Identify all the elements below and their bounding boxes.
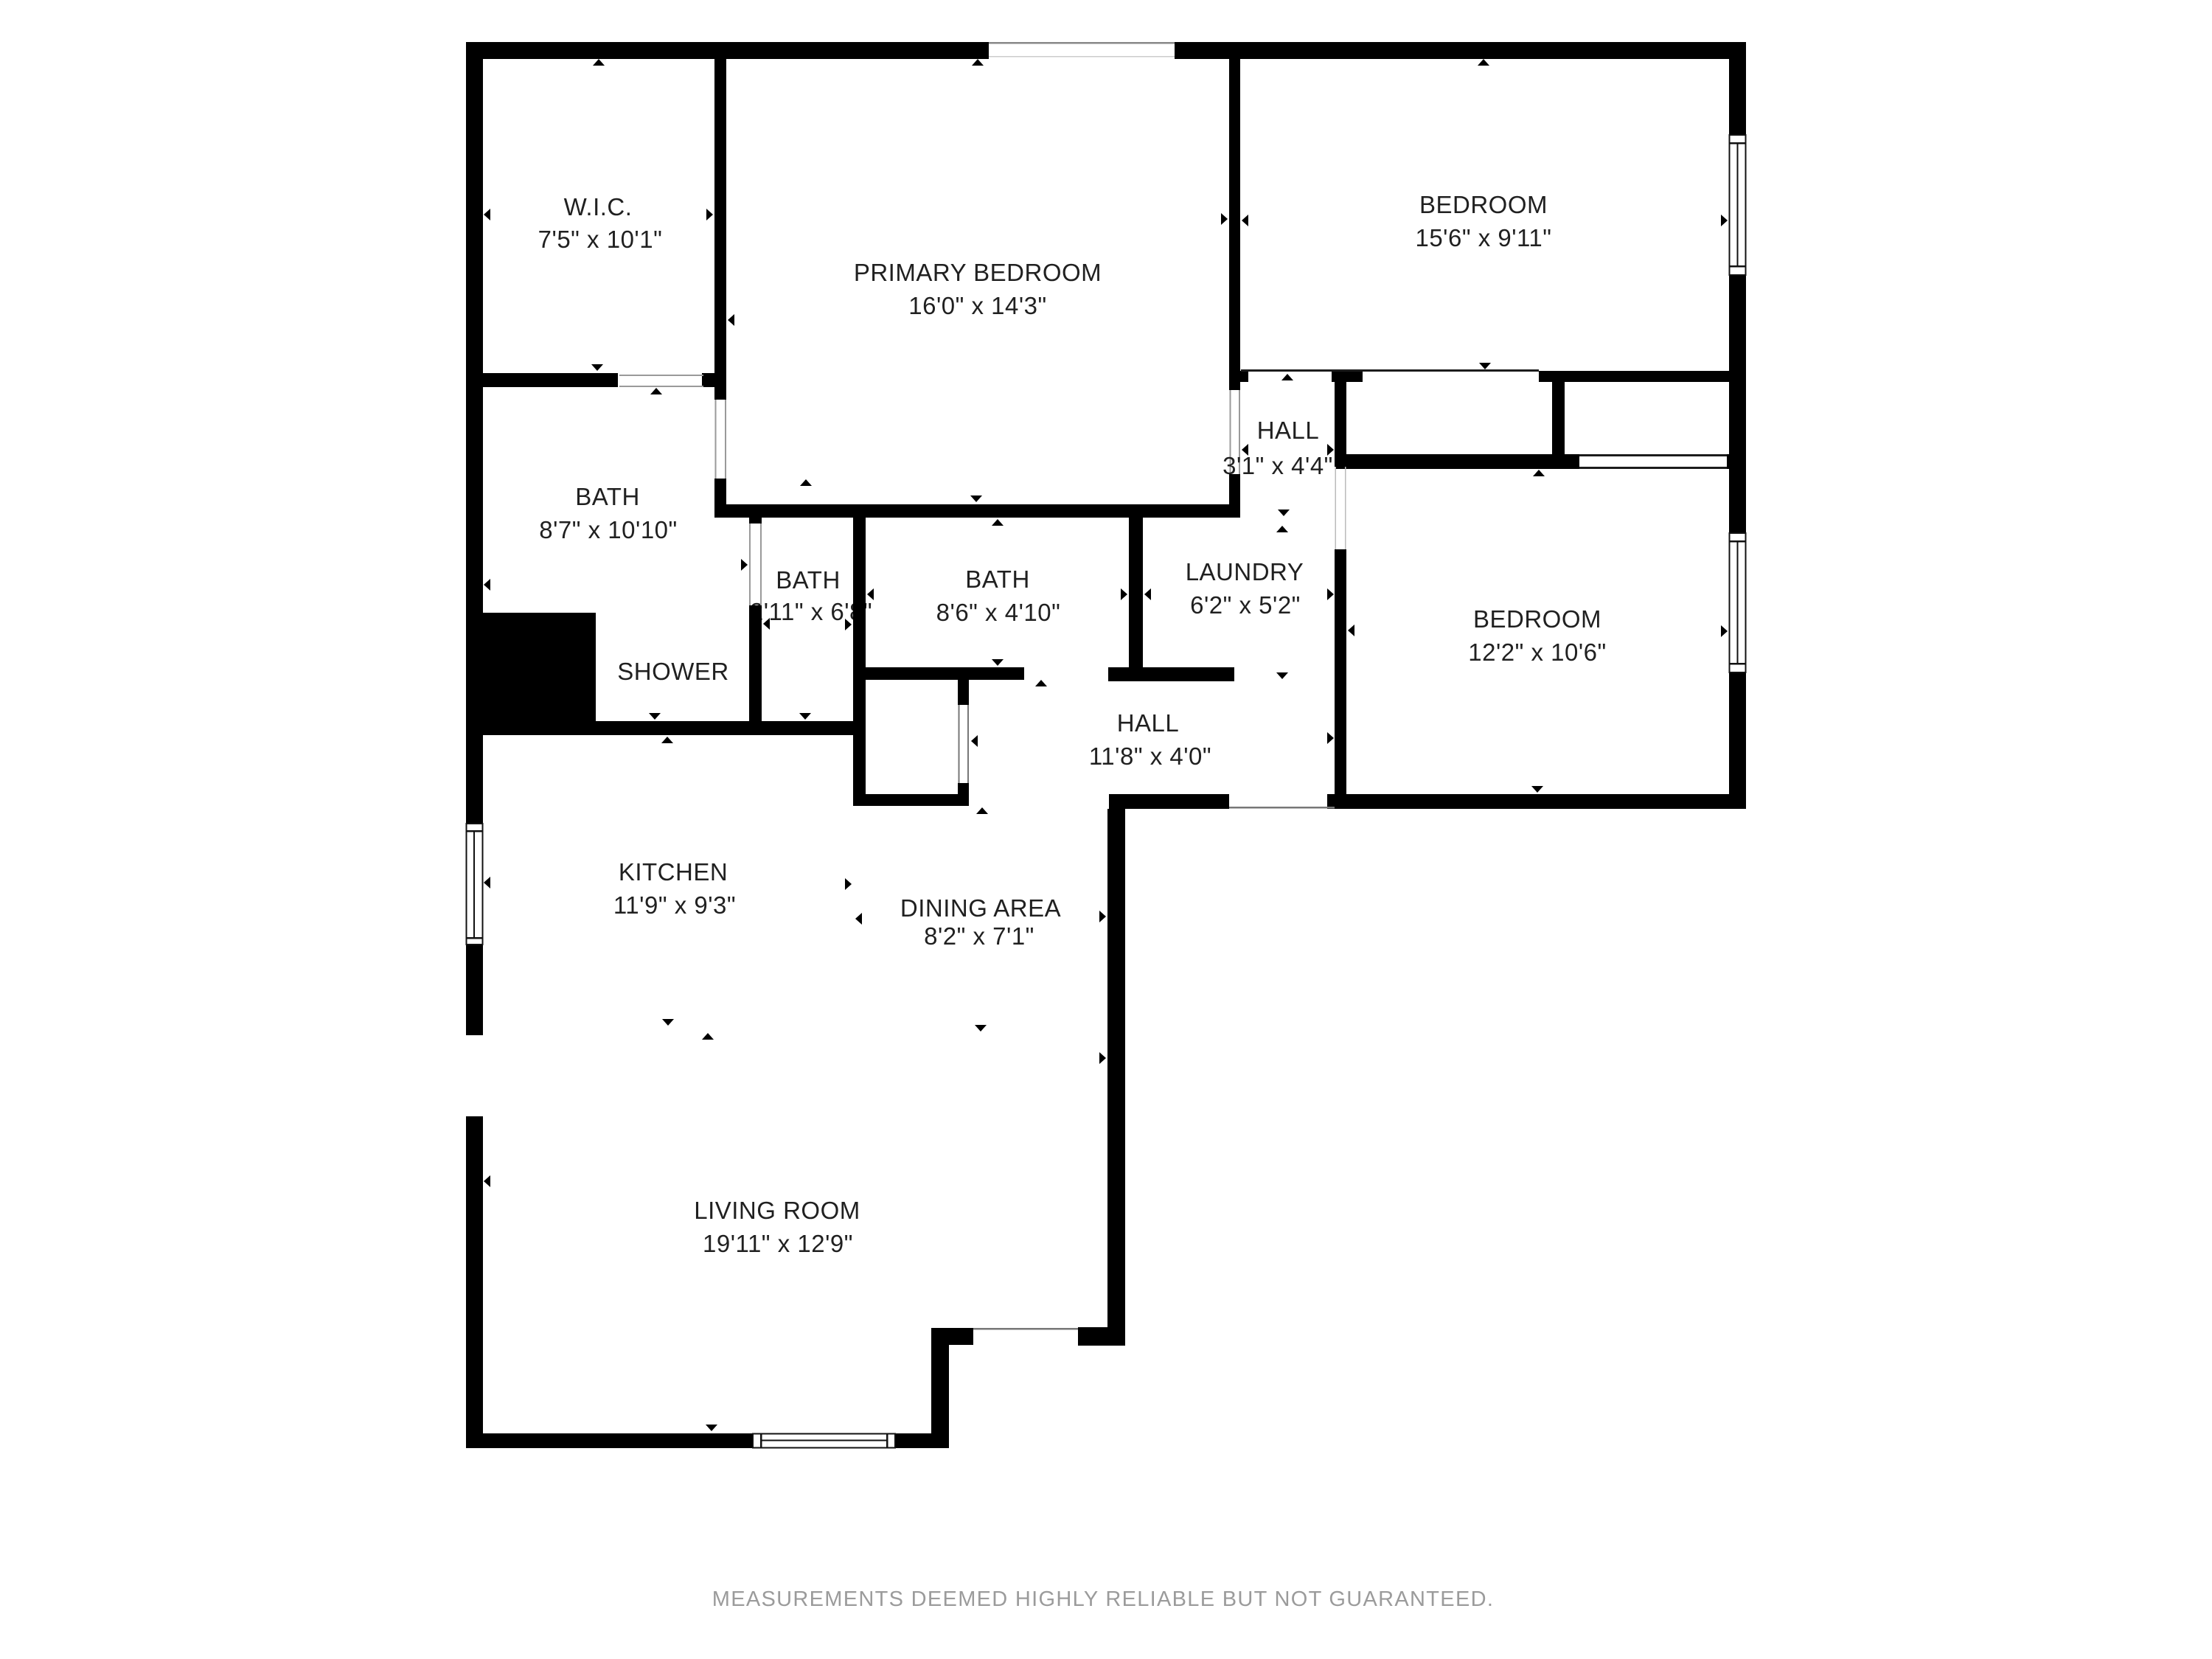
svg-text:19'11" x 12'9": 19'11" x 12'9": [703, 1230, 853, 1257]
svg-text:15'6" x 9'11": 15'6" x 9'11": [1415, 224, 1551, 251]
svg-text:LAUNDRY: LAUNDRY: [1186, 558, 1304, 585]
svg-text:8'7" x 10'10": 8'7" x 10'10": [539, 516, 677, 543]
svg-text:8'6" x 4'10": 8'6" x 4'10": [936, 599, 1061, 626]
svg-text:HALL: HALL: [1117, 709, 1180, 737]
svg-text:W.I.C.: W.I.C.: [564, 193, 633, 220]
svg-text:16'0" x 14'3": 16'0" x 14'3": [908, 292, 1046, 319]
svg-text:6'2" x 5'2": 6'2" x 5'2": [1190, 591, 1301, 619]
svg-text:BATH: BATH: [575, 483, 640, 510]
svg-text:12'2" x 10'6": 12'2" x 10'6": [1468, 639, 1606, 666]
svg-text:DINING AREA: DINING AREA: [900, 894, 1061, 922]
svg-text:11'9" x 9'3": 11'9" x 9'3": [613, 891, 736, 919]
svg-text:PRIMARY BEDROOM: PRIMARY BEDROOM: [854, 259, 1102, 286]
svg-text:BEDROOM: BEDROOM: [1419, 191, 1548, 218]
svg-text:LIVING ROOM: LIVING ROOM: [694, 1197, 860, 1224]
svg-text:11'8" x 4'0": 11'8" x 4'0": [1089, 742, 1211, 770]
svg-text:KITCHEN: KITCHEN: [619, 858, 728, 886]
svg-text:BATH: BATH: [965, 566, 1030, 593]
svg-text:BEDROOM: BEDROOM: [1473, 605, 1601, 633]
svg-text:8'2" x 7'1": 8'2" x 7'1": [924, 922, 1034, 950]
svg-text:3'1" x 4'4": 3'1" x 4'4": [1222, 452, 1333, 479]
svg-text:MEASUREMENTS DEEMED HIGHLY REL: MEASUREMENTS DEEMED HIGHLY RELIABLE BUT …: [712, 1587, 1494, 1611]
svg-text:HALL: HALL: [1257, 417, 1320, 444]
svg-text:BATH: BATH: [776, 566, 841, 594]
svg-text:SHOWER: SHOWER: [617, 658, 729, 685]
svg-text:7'5" x 10'1": 7'5" x 10'1": [538, 226, 663, 253]
